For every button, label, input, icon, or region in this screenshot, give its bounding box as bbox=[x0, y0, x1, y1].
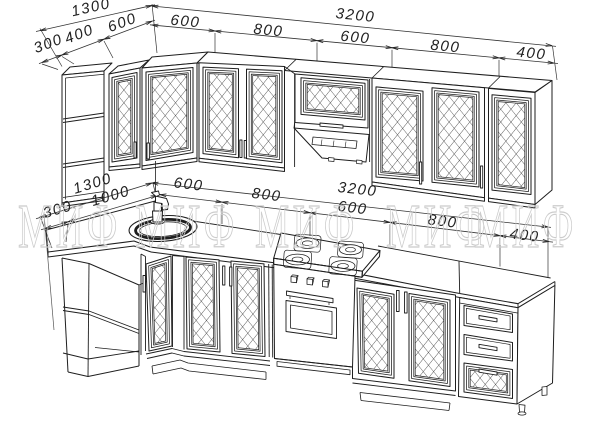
svg-text:800: 800 bbox=[430, 37, 461, 57]
svg-text:400: 400 bbox=[516, 44, 547, 64]
svg-text:600: 600 bbox=[170, 12, 201, 32]
svg-text:600: 600 bbox=[173, 174, 205, 194]
svg-text:МИФ: МИФ bbox=[135, 193, 234, 262]
svg-text:МИФ: МИФ bbox=[474, 193, 573, 262]
svg-text:800: 800 bbox=[253, 21, 284, 41]
svg-text:МИФ: МИФ bbox=[18, 193, 117, 262]
svg-text:МИФ: МИФ bbox=[386, 193, 485, 262]
svg-text:МИФ: МИФ bbox=[255, 193, 354, 262]
svg-text:600: 600 bbox=[340, 28, 371, 48]
